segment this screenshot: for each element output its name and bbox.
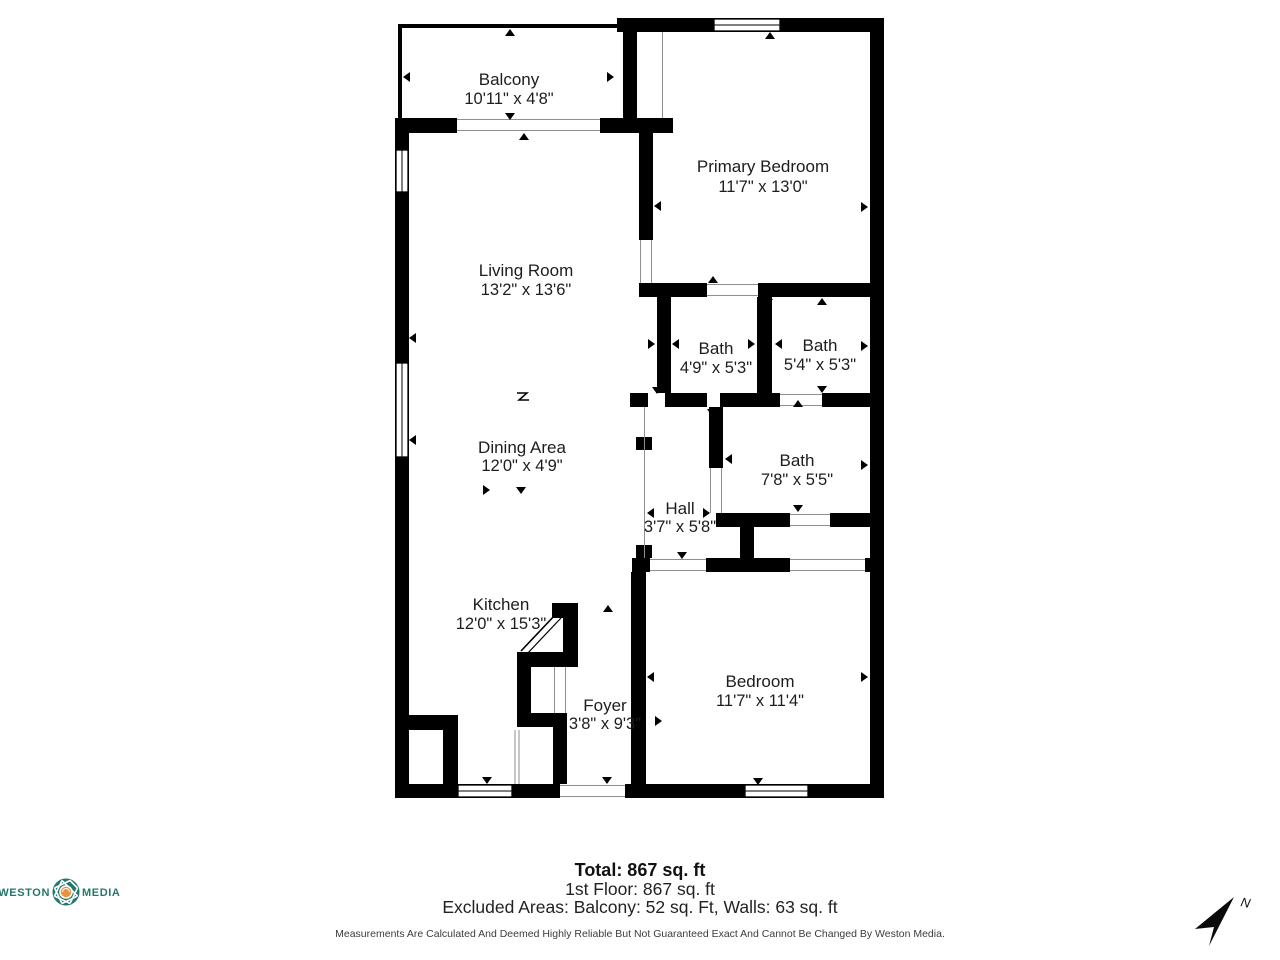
disclaimer-text: Measurements Are Calculated And Deemed H…: [335, 928, 945, 940]
room-dims-primary-bedroom: 11'7" x 13'0": [718, 178, 807, 196]
room-label-hall: Hall: [665, 499, 694, 518]
room-label-balcony: Balcony: [479, 70, 540, 89]
window-primary-bedroom: [714, 19, 780, 31]
room-dims-balcony: 10'11" x 4'8": [464, 90, 553, 108]
floor-plan-canvas: Balcony 10'11" x 4'8" Primary Bedroom 11…: [0, 0, 1280, 960]
room-dims-hall: 3'7" x 5'8": [644, 518, 716, 536]
room-dims-kitchen: 12'0" x 15'3": [456, 615, 547, 633]
window-bottom-left: [458, 785, 512, 797]
window-bedroom: [745, 785, 808, 797]
first-floor-area-text: 1st Floor: 867 sq. ft: [565, 879, 715, 899]
room-label-bath-3: Bath: [780, 451, 815, 470]
window-living-upper: [396, 150, 408, 192]
room-dims-bath-2: 5'4" x 5'3": [784, 356, 856, 374]
camera-shutter-icon: [53, 879, 80, 906]
room-label-dining-area: Dining Area: [478, 438, 566, 457]
room-dims-bath-3: 7'8" x 5'5": [761, 471, 833, 489]
logo-word-media: MEDIA: [82, 887, 120, 899]
floor-plan-page: Balcony 10'11" x 4'8" Primary Bedroom 11…: [0, 0, 1280, 960]
room-label-bedroom: Bedroom: [726, 672, 795, 691]
logo-word-weston: WESTON: [0, 887, 50, 899]
room-dims-bedroom: 11'7" x 11'4": [716, 692, 804, 710]
room-label-bath-2: Bath: [803, 336, 838, 355]
room-label-kitchen: Kitchen: [473, 595, 530, 614]
room-dims-living-room: 13'2" x 13'6": [481, 281, 572, 299]
room-dims-bath-1: 4'9" x 5'3": [680, 359, 752, 377]
room-label-primary-bedroom: Primary Bedroom: [697, 157, 829, 176]
room-label-living-room: Living Room: [479, 261, 574, 280]
window-dining: [396, 363, 408, 457]
room-dims-dining-area: 12'0" x 4'9": [481, 457, 562, 475]
room-dims-foyer: 3'8" x 9'3": [569, 715, 641, 733]
excluded-areas-text: Excluded Areas: Balcony: 52 sq. Ft, Wall…: [442, 897, 837, 917]
total-area-text: Total: 867 sq. ft: [575, 860, 706, 880]
room-label-bath-1: Bath: [699, 339, 734, 358]
room-label-foyer: Foyer: [583, 696, 627, 715]
